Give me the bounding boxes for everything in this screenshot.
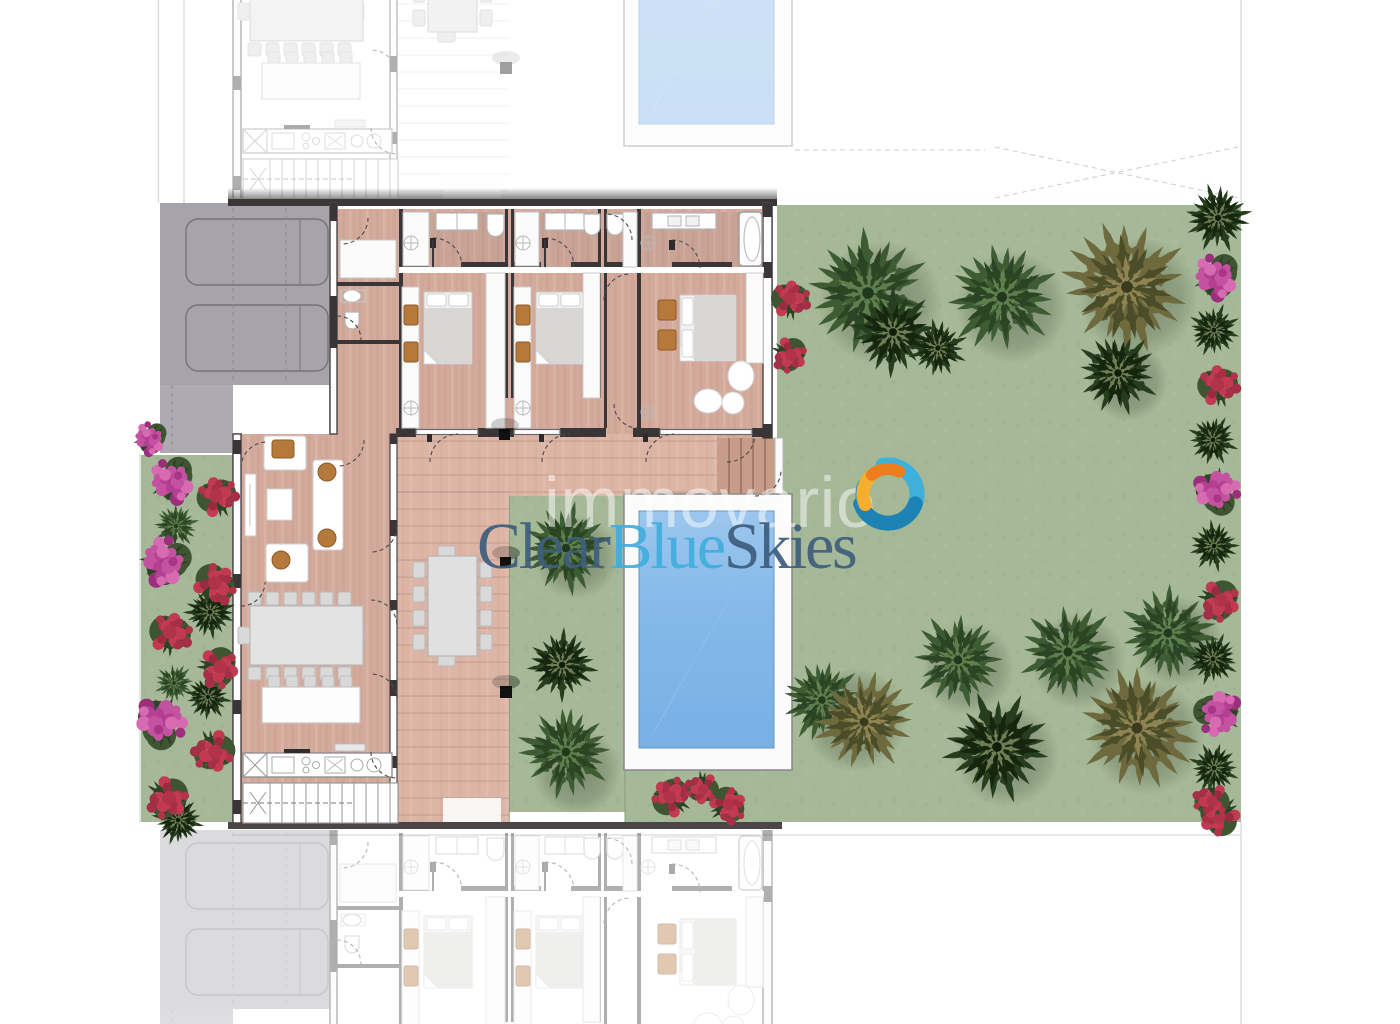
- svg-text:ClearBlueSkies: ClearBlueSkies: [477, 510, 856, 583]
